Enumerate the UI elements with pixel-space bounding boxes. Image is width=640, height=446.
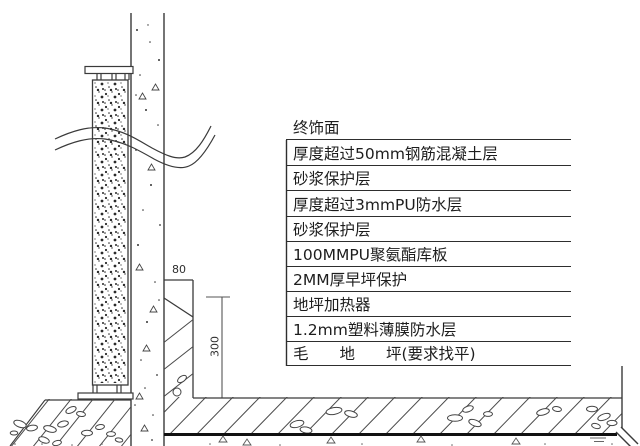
insulation-panel xyxy=(93,80,129,385)
layer-label: 1.2mm塑料薄膜防水层 xyxy=(293,323,456,339)
layer-label-row: 100MMPU聚氨酯库板 xyxy=(286,242,571,267)
layer-label: 厚度超过3mmPU防水层 xyxy=(293,198,462,214)
layer-label: 厚度超过50mm钢筋混凝土层 xyxy=(293,147,498,163)
layer-label: 100MMPU聚氨酯库板 xyxy=(293,248,448,264)
floor-slab-left xyxy=(0,398,160,446)
panel-fixing-bottom xyxy=(78,385,133,399)
layer-label-row: 砂浆保护层 xyxy=(286,166,571,191)
layer-label-row: 毛 地 坪(要求找平) xyxy=(286,341,571,366)
layer-label-row: 厚度超过3mmPU防水层 xyxy=(286,192,571,217)
layer-label-row: 砂浆保护层 xyxy=(286,217,571,242)
wall-concrete-texture xyxy=(134,24,161,441)
layer-label-row: 2MM厚早坪保护 xyxy=(286,267,571,292)
layer-label-row: 厚度超过50mm钢筋混凝土层 xyxy=(286,141,571,166)
layer-label: 砂浆保护层 xyxy=(293,223,371,239)
layer-label: 毛 地 坪(要求找平) xyxy=(293,347,476,363)
wall-section xyxy=(131,13,164,446)
layer-label-row: 地坪加热器 xyxy=(286,292,571,317)
break-wave-lines xyxy=(55,126,215,168)
layer-label: 终饰面 xyxy=(293,121,340,137)
construction-detail-drawing: 终饰面 厚度超过50mm钢筋混凝土层 砂浆保护层 厚度超过3mmPU防水层 砂浆… xyxy=(0,0,640,446)
floor-slab-right xyxy=(140,396,639,437)
panel-fixing-top xyxy=(85,67,133,81)
layer-label: 砂浆保护层 xyxy=(293,172,371,188)
dimension-300-label: 300 xyxy=(210,328,221,366)
dimension-80-label: 80 xyxy=(163,264,195,275)
layer-label-row: 终饰面 xyxy=(286,115,571,140)
floor-plinth-stones xyxy=(173,374,188,396)
layer-label-row: 1.2mm塑料薄膜防水层 xyxy=(286,317,571,342)
layer-label: 地坪加热器 xyxy=(293,298,371,314)
slab-edge-break xyxy=(616,366,638,446)
layer-label: 2MM厚早坪保护 xyxy=(293,273,407,289)
floor-plinth-hatch xyxy=(162,318,195,398)
